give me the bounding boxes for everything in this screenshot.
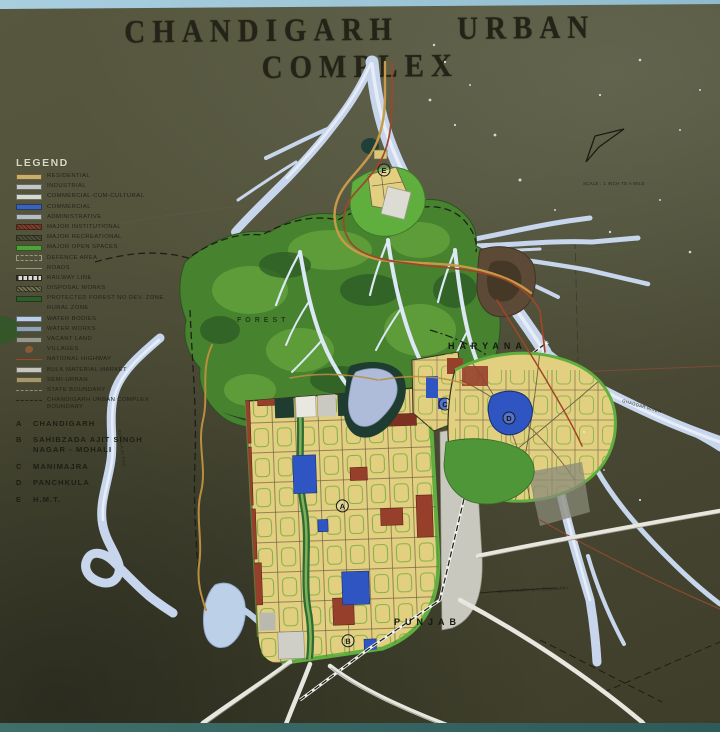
legend-key-item: C MANIMAJRA bbox=[16, 462, 176, 472]
legend-swatch bbox=[16, 224, 42, 230]
label-boundary-note: CHANDIGARH U.T. BOUNDARY bbox=[498, 585, 569, 594]
legend-item: WATER BODIES bbox=[16, 316, 176, 323]
legend-item-label: BULK MATERIAL MARKET bbox=[47, 367, 127, 374]
legend-item: PROTECTED FOREST NO DEV. ZONE bbox=[16, 295, 176, 302]
svg-text:D: D bbox=[506, 414, 512, 423]
legend-swatch bbox=[16, 275, 42, 281]
key-name-line1: PANCHKULA bbox=[33, 478, 90, 487]
legend-item-label: COMMERCIAL bbox=[47, 204, 91, 211]
north-arrow-icon bbox=[586, 129, 624, 162]
legend-swatch bbox=[16, 400, 42, 401]
legend-item-label: MAJOR OPEN SPACES bbox=[47, 244, 118, 251]
legend-item-label: WATER WORKS bbox=[47, 326, 96, 333]
legend-item-label: VILLAGES bbox=[47, 346, 79, 353]
legend-item: MAJOR INSTITUTIONAL bbox=[16, 224, 176, 231]
legend-item: NATIONAL HIGHWAY bbox=[16, 356, 176, 363]
marker-chandigarh: A bbox=[336, 500, 348, 512]
legend-key-item: A CHANDIGARH bbox=[16, 419, 176, 429]
legend-swatch bbox=[16, 174, 42, 180]
legend-swatch bbox=[16, 268, 42, 269]
key-name: H.M.T. bbox=[33, 495, 61, 505]
legend-swatch bbox=[16, 359, 42, 360]
chandigarh-city: A B bbox=[221, 385, 443, 714]
legend-item: WATER WORKS bbox=[16, 326, 176, 333]
legend-panel: LEGEND RESIDENTIAL INDUSTRIAL COMMERCIAL… bbox=[16, 157, 176, 511]
legend-item: SEMI-URBAN bbox=[16, 377, 176, 384]
legend-swatch bbox=[16, 235, 42, 241]
legend-key-item: B SAHIBZADA AJIT SINGHNAGAR - MOHALI bbox=[16, 435, 176, 455]
legend-item: ADMINISTRATIVE bbox=[16, 214, 176, 221]
legend-item-label: INDUSTRIAL bbox=[47, 183, 86, 190]
key-letter: D bbox=[16, 478, 24, 488]
legend-swatch bbox=[16, 377, 42, 383]
key-name: SAHIBZADA AJIT SINGHNAGAR - MOHALI bbox=[33, 435, 143, 455]
label-punjab: PUNJAB bbox=[394, 617, 461, 627]
svg-text:E: E bbox=[381, 166, 386, 175]
legend-item: COMMERCIAL bbox=[16, 204, 176, 211]
legend-item: VILLAGES bbox=[16, 346, 176, 353]
legend-item-label: ADMINISTRATIVE bbox=[47, 214, 102, 221]
legend-item-label: VACANT LAND bbox=[47, 336, 92, 343]
legend-item-label: DISPOSAL WORKS bbox=[47, 285, 106, 292]
legend-item-label: RAILWAY LINE bbox=[47, 275, 92, 282]
marker-panchkula: D bbox=[503, 412, 515, 424]
legend-swatch bbox=[16, 204, 42, 210]
legend-item-label: DEFENCE AREA bbox=[47, 255, 97, 262]
marker-hmt: E bbox=[378, 164, 390, 176]
svg-text:B: B bbox=[345, 637, 351, 646]
legend-item: INDUSTRIAL bbox=[16, 183, 176, 190]
legend-item-label: STATE BOUNDARY bbox=[47, 387, 106, 394]
key-name-line1: H.M.T. bbox=[33, 495, 61, 504]
legend-swatch bbox=[16, 194, 42, 200]
panchkula-town: D bbox=[444, 350, 620, 526]
legend-key-item: E H.M.T. bbox=[16, 495, 176, 505]
legend-item: MAJOR RECREATIONAL bbox=[16, 234, 176, 241]
legend-item: MAJOR OPEN SPACES bbox=[16, 244, 176, 251]
legend-item: RAILWAY LINE bbox=[16, 275, 176, 282]
key-name: CHANDIGARH bbox=[33, 419, 95, 429]
legend-item: RURAL ZONE bbox=[16, 305, 176, 312]
legend-key-item: D PANCHKULA bbox=[16, 478, 176, 488]
legend-item: ROADS bbox=[16, 265, 176, 272]
key-name: MANIMAJRA bbox=[33, 462, 89, 472]
legend-swatch bbox=[16, 326, 42, 332]
legend-item-label: NATIONAL HIGHWAY bbox=[47, 356, 111, 363]
legend-list: RESIDENTIAL INDUSTRIAL COMMERCIAL-CUM-CU… bbox=[16, 173, 176, 411]
key-name-line1: MANIMAJRA bbox=[33, 462, 89, 471]
legend-swatch bbox=[16, 296, 42, 302]
legend-swatch bbox=[16, 184, 42, 190]
photo-of-map-board: CHANDIGARH URBAN COMPLEX bbox=[0, 0, 720, 732]
key-letter: B bbox=[16, 435, 24, 455]
legend-item-label: MAJOR INSTITUTIONAL bbox=[47, 224, 121, 231]
legend-item-label: ROADS bbox=[47, 265, 70, 272]
floor-below-board bbox=[0, 723, 720, 732]
legend-item-label: MAJOR RECREATIONAL bbox=[47, 234, 122, 241]
legend-swatch bbox=[16, 245, 42, 251]
key-name: PANCHKULA bbox=[33, 478, 90, 488]
scale-text: SCALE : 1 INCH TO A MILE bbox=[583, 181, 645, 186]
legend-swatch bbox=[16, 316, 42, 322]
legend-item-label: CHANDIGARH URBAN COMPLEX BOUNDARY bbox=[47, 397, 176, 411]
legend-swatch bbox=[16, 347, 42, 353]
legend-item: COMMERCIAL-CUM-CULTURAL bbox=[16, 193, 176, 200]
legend-item-label: PROTECTED FOREST NO DEV. ZONE bbox=[47, 295, 164, 302]
legend-swatch bbox=[16, 214, 42, 220]
legend-item-label: COMMERCIAL-CUM-CULTURAL bbox=[47, 193, 144, 200]
key-name-line1: CHANDIGARH bbox=[33, 419, 95, 428]
legend-swatch bbox=[16, 390, 42, 391]
legend-item-label: RURAL ZONE bbox=[47, 305, 89, 312]
legend-item: STATE BOUNDARY bbox=[16, 387, 176, 394]
legend-item-label: RESIDENTIAL bbox=[47, 173, 90, 180]
legend-key-list: A CHANDIGARH B SAHIBZADA AJIT SINGHNAGAR… bbox=[16, 419, 176, 505]
legend-swatch bbox=[16, 337, 42, 343]
legend-item: VACANT LAND bbox=[16, 336, 176, 343]
legend-heading: LEGEND bbox=[16, 157, 176, 169]
legend-item: DISPOSAL WORKS bbox=[16, 285, 176, 292]
legend-swatch bbox=[16, 306, 42, 312]
key-name-line2: NAGAR - MOHALI bbox=[33, 445, 143, 455]
label-haryana: HARYANA bbox=[448, 341, 527, 351]
key-name-line1: SAHIBZADA AJIT SINGH bbox=[33, 435, 143, 444]
key-letter: C bbox=[16, 462, 24, 472]
legend-item: CHANDIGARH URBAN COMPLEX BOUNDARY bbox=[16, 397, 176, 411]
svg-text:A: A bbox=[339, 502, 345, 511]
legend-item: DEFENCE AREA bbox=[16, 255, 176, 262]
label-forest: FOREST bbox=[237, 317, 289, 324]
legend-item-label: SEMI-URBAN bbox=[47, 377, 88, 384]
legend-swatch bbox=[16, 367, 42, 373]
marker-mohali: B bbox=[342, 635, 354, 647]
key-letter: E bbox=[16, 495, 24, 505]
legend-item: BULK MATERIAL MARKET bbox=[16, 367, 176, 374]
pond-southwest bbox=[203, 583, 245, 647]
svg-text:C: C bbox=[442, 400, 448, 409]
key-letter: A bbox=[16, 419, 24, 429]
legend-swatch bbox=[16, 255, 42, 261]
legend-item-label: WATER BODIES bbox=[47, 316, 96, 323]
legend-item: RESIDENTIAL bbox=[16, 173, 176, 180]
legend-swatch bbox=[16, 286, 42, 292]
